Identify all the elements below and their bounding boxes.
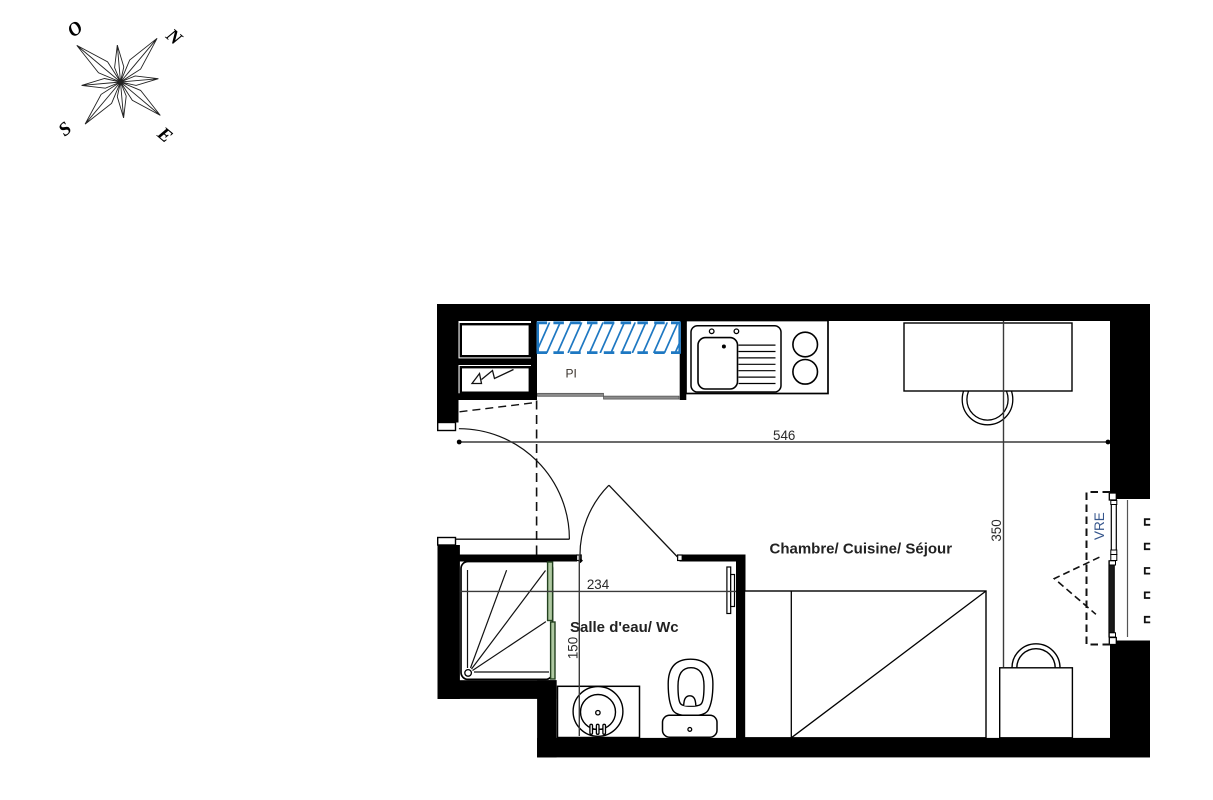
svg-text:234: 234	[587, 577, 610, 592]
svg-text:Salle d'eau/ Wc: Salle d'eau/ Wc	[570, 619, 679, 636]
svg-text:546: 546	[773, 428, 795, 443]
svg-text:VRE: VRE	[1092, 512, 1107, 540]
svg-text:150: 150	[566, 637, 581, 659]
svg-text:PI: PI	[566, 367, 577, 381]
svg-text:Chambre/ Cuisine/ Séjour: Chambre/ Cuisine/ Séjour	[770, 540, 953, 557]
svg-text:350: 350	[989, 519, 1004, 541]
